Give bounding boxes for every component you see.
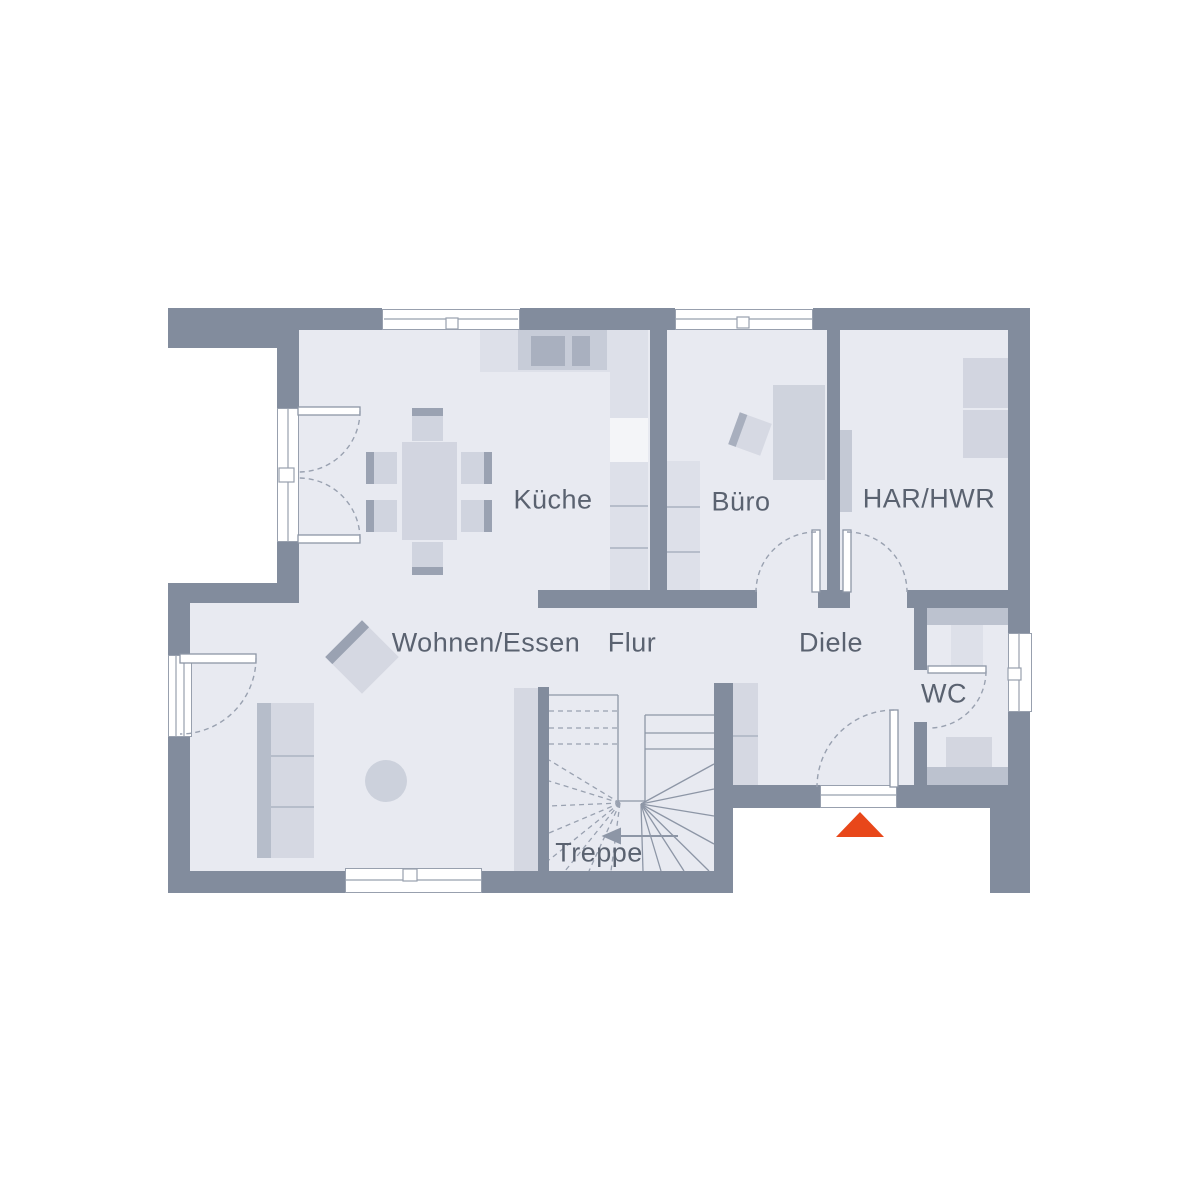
- room-label-flur: Flur: [608, 628, 657, 659]
- sofa: [257, 703, 314, 858]
- floor-plan: Küche Büro HAR/HWR Wohnen/Essen Flur Die…: [0, 0, 1200, 1200]
- wc-ledge: [927, 767, 1008, 785]
- wall-top: [520, 308, 675, 330]
- wall-office-utility: [827, 328, 840, 608]
- wall-corridor-north: [538, 590, 757, 608]
- wall-kitchen-office: [650, 328, 667, 608]
- wc-toilet: [946, 737, 992, 768]
- sideboard: [514, 688, 538, 871]
- sofa-divider: [271, 806, 314, 808]
- wall-stair-west: [538, 687, 549, 871]
- wall-bottom: [168, 871, 345, 893]
- round-side-table: [365, 760, 407, 802]
- kitchen-counter-east: [610, 372, 648, 593]
- wall-stair-east: [714, 683, 733, 893]
- entrance-door-threshold: [820, 785, 897, 808]
- terrace-door-west: [168, 655, 192, 737]
- dining-chair-left-1: [366, 452, 397, 484]
- dining-chair-bottom: [412, 542, 443, 575]
- wc-vanity-counter: [927, 607, 1008, 625]
- wall-left: [168, 737, 190, 871]
- room-label-buero: Büro: [711, 487, 770, 518]
- wall-left: [168, 583, 190, 655]
- washer: [963, 358, 1008, 408]
- wall-corridor-north: [907, 590, 1008, 608]
- dining-chair-right-1: [461, 452, 492, 484]
- counter-divider: [610, 547, 648, 549]
- kitchen-hob-panel: [610, 418, 648, 462]
- window-dining-north: [382, 309, 520, 330]
- office-cabinet-strip: [666, 461, 700, 595]
- dining-table: [402, 442, 457, 540]
- dining-chair-left-2: [366, 500, 397, 532]
- dining-chair-top: [412, 408, 443, 441]
- dryer: [963, 410, 1008, 458]
- room-label-wc: WC: [921, 679, 967, 710]
- kitchen-sink-basin-left: [531, 336, 565, 366]
- wall-corridor-north: [818, 590, 850, 608]
- room-label-treppe: Treppe: [555, 838, 643, 869]
- entrance-marker: [836, 812, 884, 837]
- french-door-west: [277, 408, 299, 542]
- wall-bottom: [482, 871, 733, 893]
- office-desk: [773, 385, 825, 480]
- room-label-diele: Diele: [799, 628, 863, 659]
- kitchen-sink-basin-right: [572, 336, 590, 366]
- wall-wc-west: [914, 608, 927, 670]
- wall-wc-west: [914, 722, 927, 785]
- room-label-kueche: Küche: [513, 485, 592, 516]
- dining-chair-right-2: [461, 500, 492, 532]
- cabinet-divider: [666, 506, 700, 508]
- cabinet-divider: [666, 551, 700, 553]
- sofa-divider: [271, 755, 314, 757]
- window-wc-east: [1008, 633, 1032, 712]
- wall-right: [1008, 308, 1030, 633]
- wc-sink: [951, 625, 983, 666]
- wall-top: [813, 308, 1030, 330]
- wall-diele-south: [897, 785, 1010, 808]
- window-office-north: [675, 309, 813, 330]
- room-label-wohnen-essen: Wohnen/Essen: [392, 628, 581, 659]
- utility-cabinet: [840, 430, 852, 512]
- counter-divider: [610, 505, 648, 507]
- wall-stub-top-left: [168, 308, 277, 348]
- wall-right: [1008, 712, 1030, 785]
- wall-bay-west: [277, 308, 299, 408]
- window-living-south: [345, 868, 482, 893]
- room-label-har-hwr: HAR/HWR: [863, 484, 996, 515]
